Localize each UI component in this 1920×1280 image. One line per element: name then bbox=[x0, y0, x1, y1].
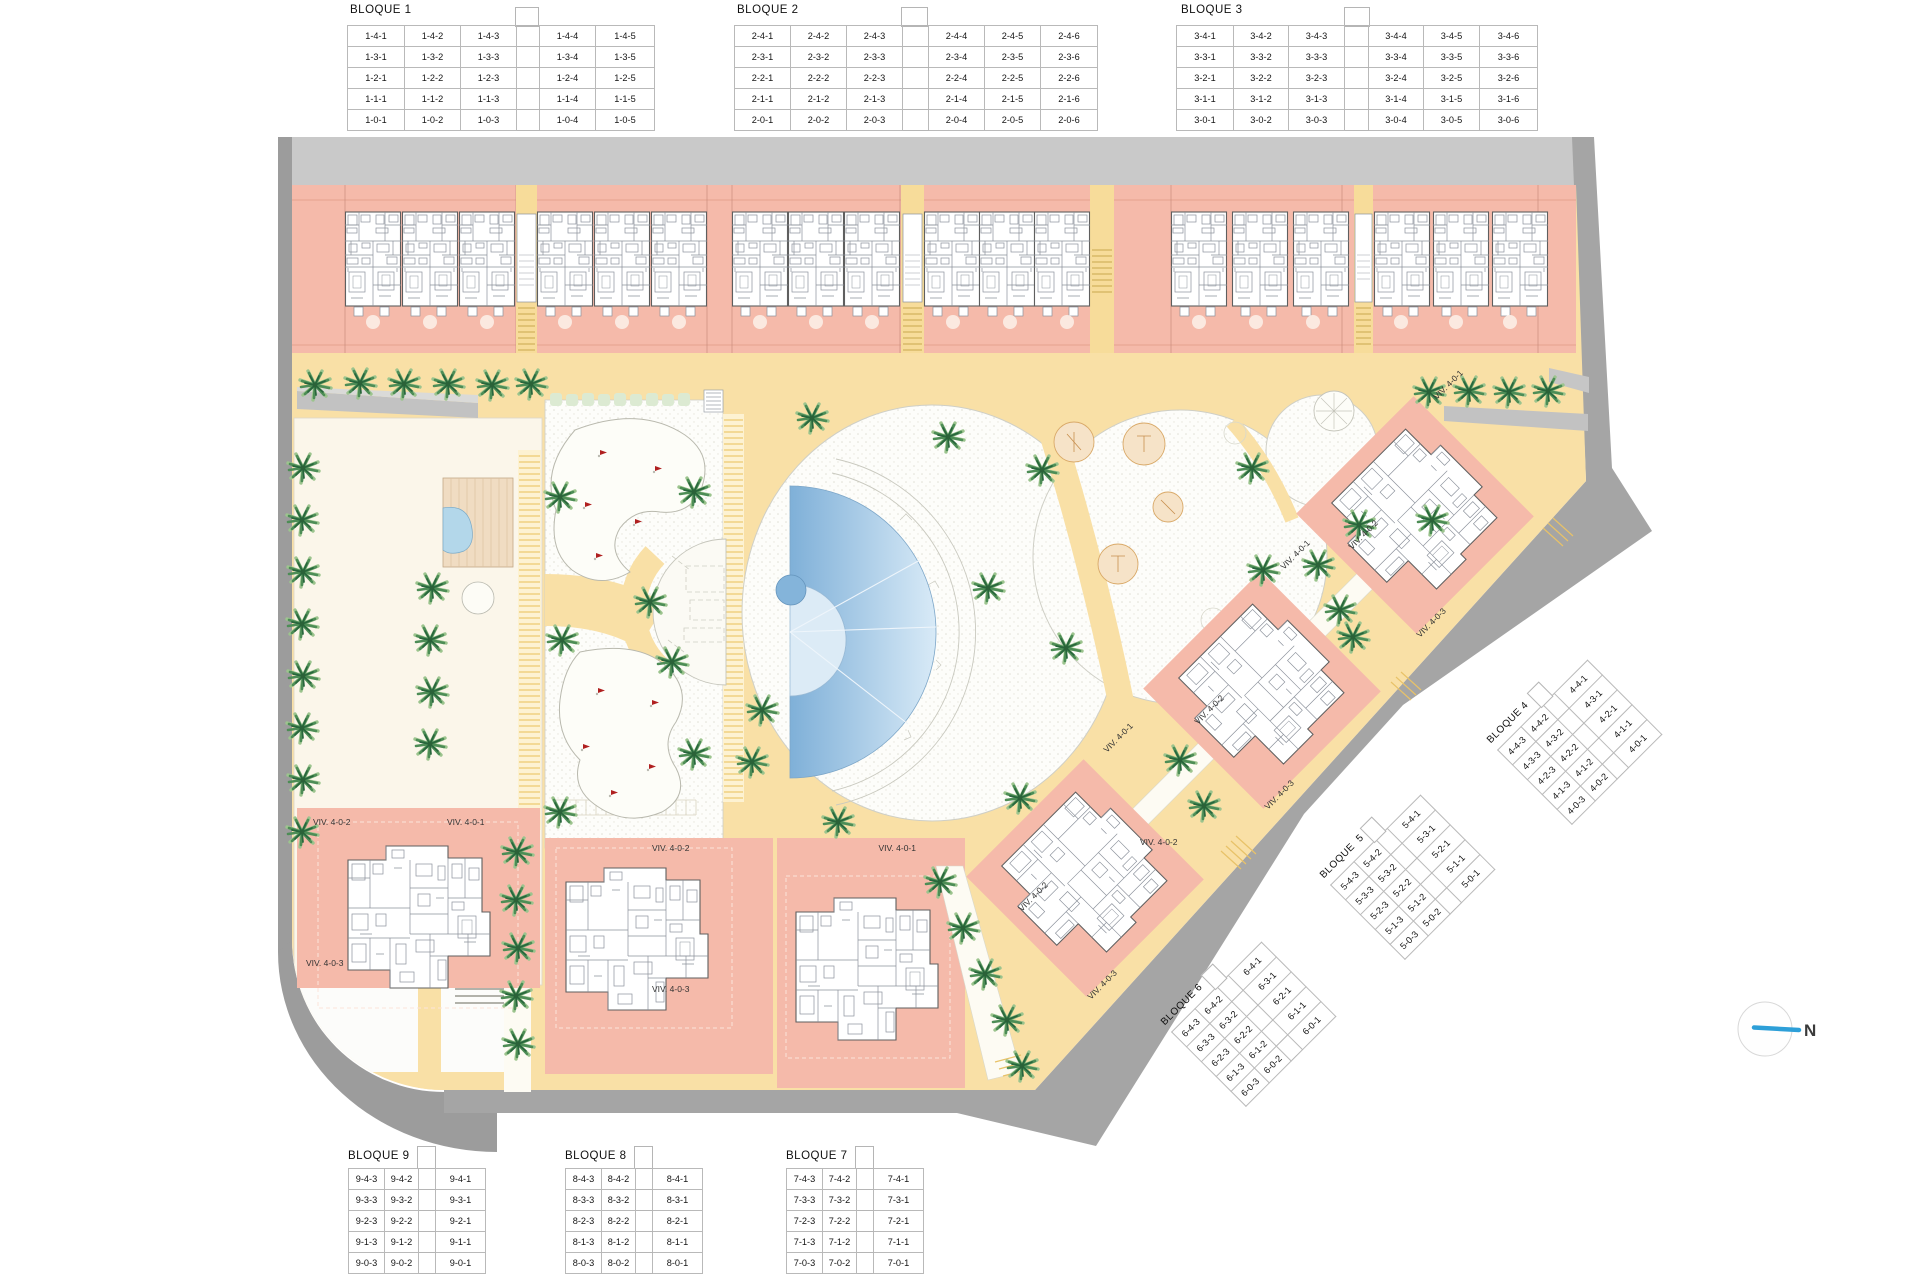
svg-text:N: N bbox=[1804, 1021, 1816, 1040]
svg-text:VIV. 4-0-2: VIV. 4-0-2 bbox=[1140, 837, 1178, 847]
svg-text:VIV. 4-0-3: VIV. 4-0-3 bbox=[306, 958, 344, 968]
svg-text:VIV. 4-0-3: VIV. 4-0-3 bbox=[652, 984, 690, 994]
svg-text:VIV. 4-0-1: VIV. 4-0-1 bbox=[447, 817, 485, 827]
svg-text:VIV. 4-0-2: VIV. 4-0-2 bbox=[313, 817, 351, 827]
svg-text:VIV. 4-0-1: VIV. 4-0-1 bbox=[879, 843, 917, 853]
svg-text:VIV. 4-0-2: VIV. 4-0-2 bbox=[652, 843, 690, 853]
